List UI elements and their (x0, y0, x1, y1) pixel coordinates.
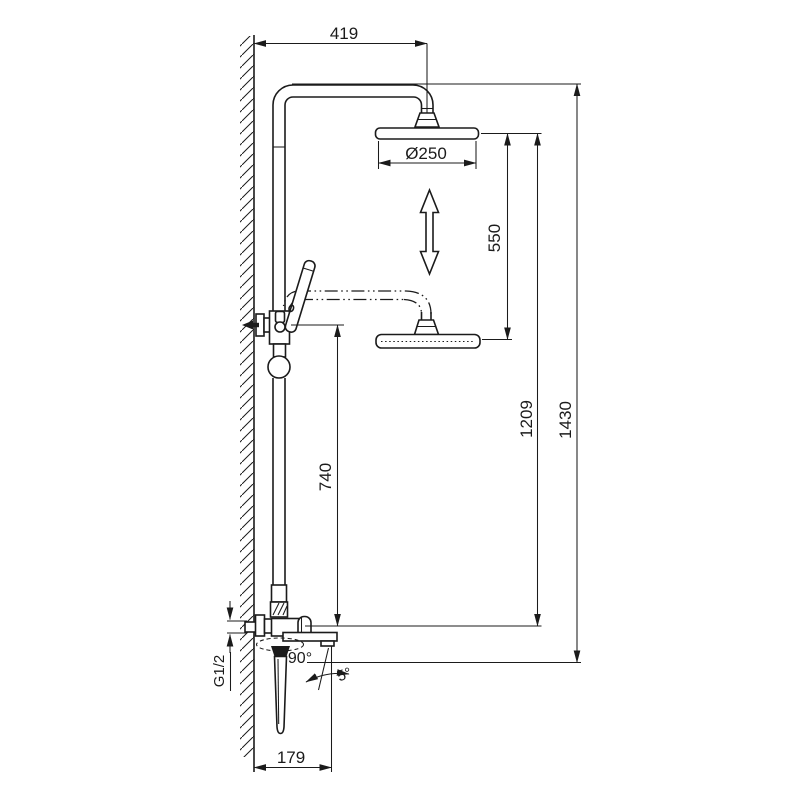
tilt-angle-label: 5° (335, 664, 354, 685)
overall-height-label: 1430 (556, 401, 575, 439)
arm-projection-label: 419 (330, 24, 358, 43)
overhead-shower-head-lower (376, 320, 480, 348)
overhead-shower-head (376, 113, 479, 139)
dimension-head-diameter: Ø250 (379, 144, 477, 163)
slider-knob (268, 356, 290, 378)
dimension-spout-projection: 179 (254, 748, 332, 768)
dimension-overall-height: 1430 (556, 84, 577, 663)
dimension-arm-projection: 419 (254, 24, 427, 44)
swivel-angle-label: 90° (288, 650, 312, 667)
height-adjust-arrow-icon (421, 190, 439, 274)
riser-nut (271, 602, 288, 617)
dimension-head-height: 1209 (517, 134, 538, 627)
lever-handle (275, 657, 287, 734)
angle-90-swivel: 90° (288, 650, 312, 667)
inlet-stub (245, 622, 256, 632)
head-height-label: 1209 (517, 400, 536, 438)
dimension-height-adjustment: 550 (485, 134, 508, 340)
spout (283, 633, 337, 642)
technical-drawing-canvas: 419 Ø250 550 1209 1430 740 179 G1/2 90° … (0, 0, 800, 800)
wall-flange (256, 615, 265, 636)
wall (240, 35, 254, 772)
head-diameter-label: Ø250 (405, 144, 447, 163)
dimension-hand-shower-height: 740 (316, 325, 338, 626)
shower-system-dimension-drawing: 419 Ø250 550 1209 1430 740 179 G1/2 90° … (0, 0, 800, 800)
spout-outlet (321, 641, 334, 646)
hand-shower-height-label: 740 (316, 463, 335, 491)
head-body (376, 128, 479, 139)
inlet-thread-label: G1/2 (211, 655, 228, 688)
height-adjustment-label: 550 (485, 224, 504, 252)
dimension-inlet-thread: G1/2 (211, 601, 231, 691)
riser-sleeve (272, 585, 287, 602)
spout-projection-label: 179 (277, 748, 305, 767)
angle-5-tilt: 5° (306, 648, 354, 690)
wall-hatching (240, 36, 254, 757)
